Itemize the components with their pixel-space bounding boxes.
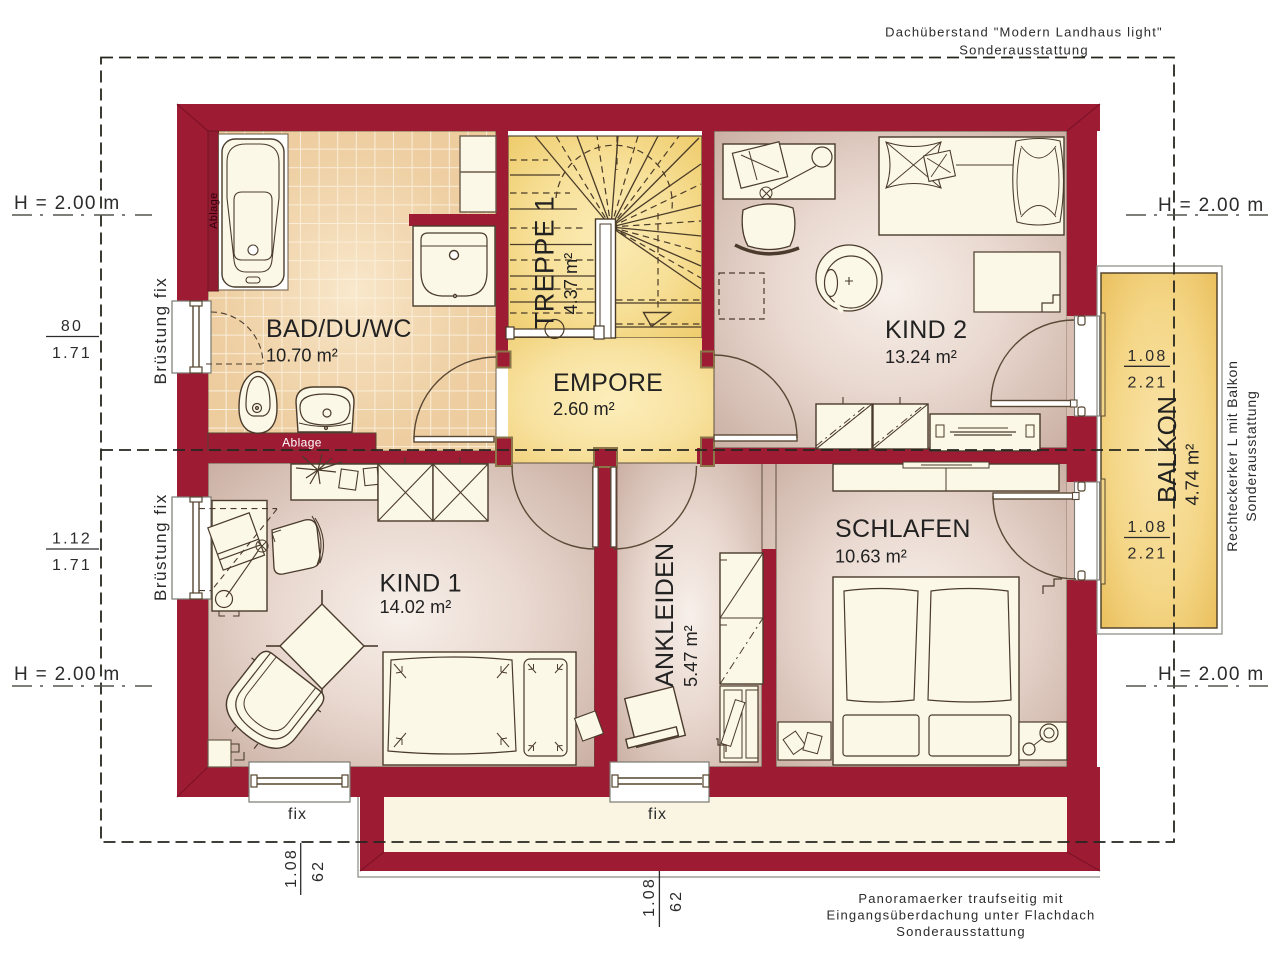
svg-text:Brüstung fix: Brüstung fix [151,493,170,601]
svg-text:H = 2.00 m: H = 2.00 m [14,193,120,214]
svg-text:2.21: 2.21 [1128,374,1168,391]
svg-text:Panoramaerker traufseitig mit: Panoramaerker traufseitig mit [858,891,1063,906]
svg-text:1.71: 1.71 [52,345,92,362]
svg-text:H = 2.00 m: H = 2.00 m [1158,664,1264,685]
svg-text:2.21: 2.21 [1128,546,1168,563]
svg-text:H = 2.00 m: H = 2.00 m [14,664,120,685]
svg-text:Rechteckerker L mit Balkon: Rechteckerker L mit Balkon [1224,360,1240,551]
svg-text:KIND 2: KIND 2 [885,316,967,344]
svg-text:Ablage: Ablage [282,436,322,450]
svg-text:Eingangsüberdachung unter Flac: Eingangsüberdachung unter Flachdach [827,908,1096,923]
svg-text:62: 62 [310,860,327,882]
svg-text:BALKON: BALKON [1152,396,1182,503]
svg-text:1.08: 1.08 [283,848,300,888]
svg-text:Sonderausstattung: Sonderausstattung [959,43,1089,58]
svg-text:fix: fix [648,806,667,823]
svg-text:4.74 m²: 4.74 m² [1183,444,1203,506]
svg-text:13.24 m²: 13.24 m² [885,347,957,367]
svg-text:2.60 m²: 2.60 m² [553,399,615,419]
svg-text:5.47 m²: 5.47 m² [681,625,701,687]
svg-text:BAD/DU/WC: BAD/DU/WC [266,315,412,343]
svg-text:fix: fix [288,806,307,823]
svg-text:62: 62 [668,890,685,912]
svg-text:ANKLEIDEN: ANKLEIDEN [651,543,679,687]
svg-text:1.08: 1.08 [1128,348,1168,365]
svg-text:EMPORE: EMPORE [553,369,663,397]
svg-text:14.02 m²: 14.02 m² [380,597,452,617]
svg-text:80: 80 [61,318,83,335]
svg-text:1.08: 1.08 [641,877,658,917]
svg-text:Sonderausstattung: Sonderausstattung [896,924,1026,939]
svg-text:1.08: 1.08 [1128,519,1168,536]
svg-text:10.63 m²: 10.63 m² [835,547,907,567]
svg-text:H = 2.00 m: H = 2.00 m [1158,195,1264,216]
svg-text:1.71: 1.71 [52,557,92,574]
svg-text:1.12: 1.12 [52,531,92,548]
svg-text:TREPPE 1: TREPPE 1 [530,196,560,329]
svg-text:Sonderausstattung: Sonderausstattung [1243,390,1259,521]
svg-text:10.70 m²: 10.70 m² [266,346,338,366]
svg-text:Ablage: Ablage [208,192,220,229]
svg-text:4.37 m²: 4.37 m² [561,253,581,315]
svg-text:Brüstung fix: Brüstung fix [151,277,170,385]
svg-text:SCHLAFEN: SCHLAFEN [835,515,971,543]
svg-text:Dachüberstand "Modern Landhaus: Dachüberstand "Modern Landhaus light" [885,25,1163,40]
svg-text:KIND 1: KIND 1 [380,570,462,598]
